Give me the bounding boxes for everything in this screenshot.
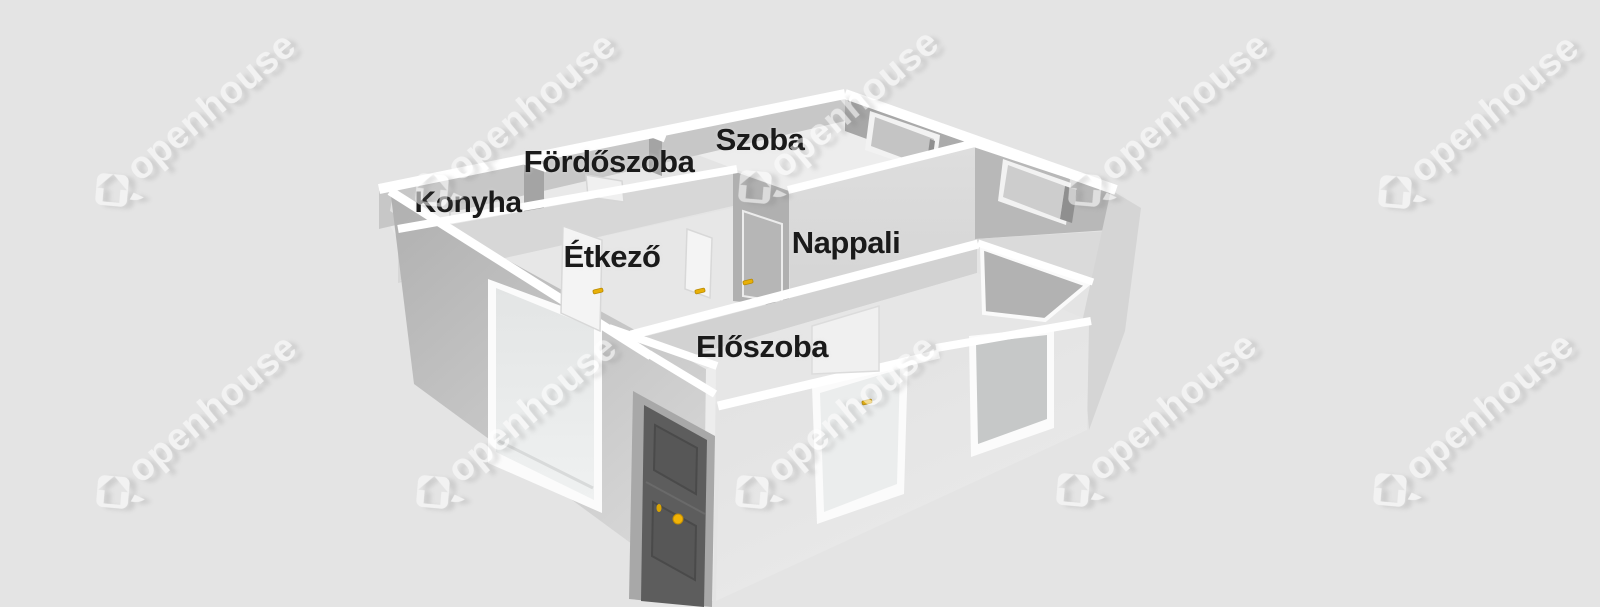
entrance-door-knob	[673, 514, 683, 524]
room-label-eloszoba: Előszoba	[696, 329, 828, 365]
floorplan-3d-render	[0, 0, 1600, 607]
door-leaf-etkezo-b	[685, 229, 712, 298]
room-label-konyha: Konyha	[414, 186, 521, 220]
room-label-nappali: Nappali	[792, 225, 900, 261]
room-label-szoba: Szoba	[716, 122, 805, 158]
floorplan-screenshot: Konyha Fördőszoba Szoba Étkező Nappali E…	[0, 0, 1600, 607]
entrance-door-keyhole	[657, 504, 662, 512]
room-label-fordoszoba: Fördőszoba	[524, 144, 695, 180]
room-label-etkezo: Étkező	[564, 239, 661, 275]
etkezo-nappali-door-frame	[743, 211, 782, 302]
